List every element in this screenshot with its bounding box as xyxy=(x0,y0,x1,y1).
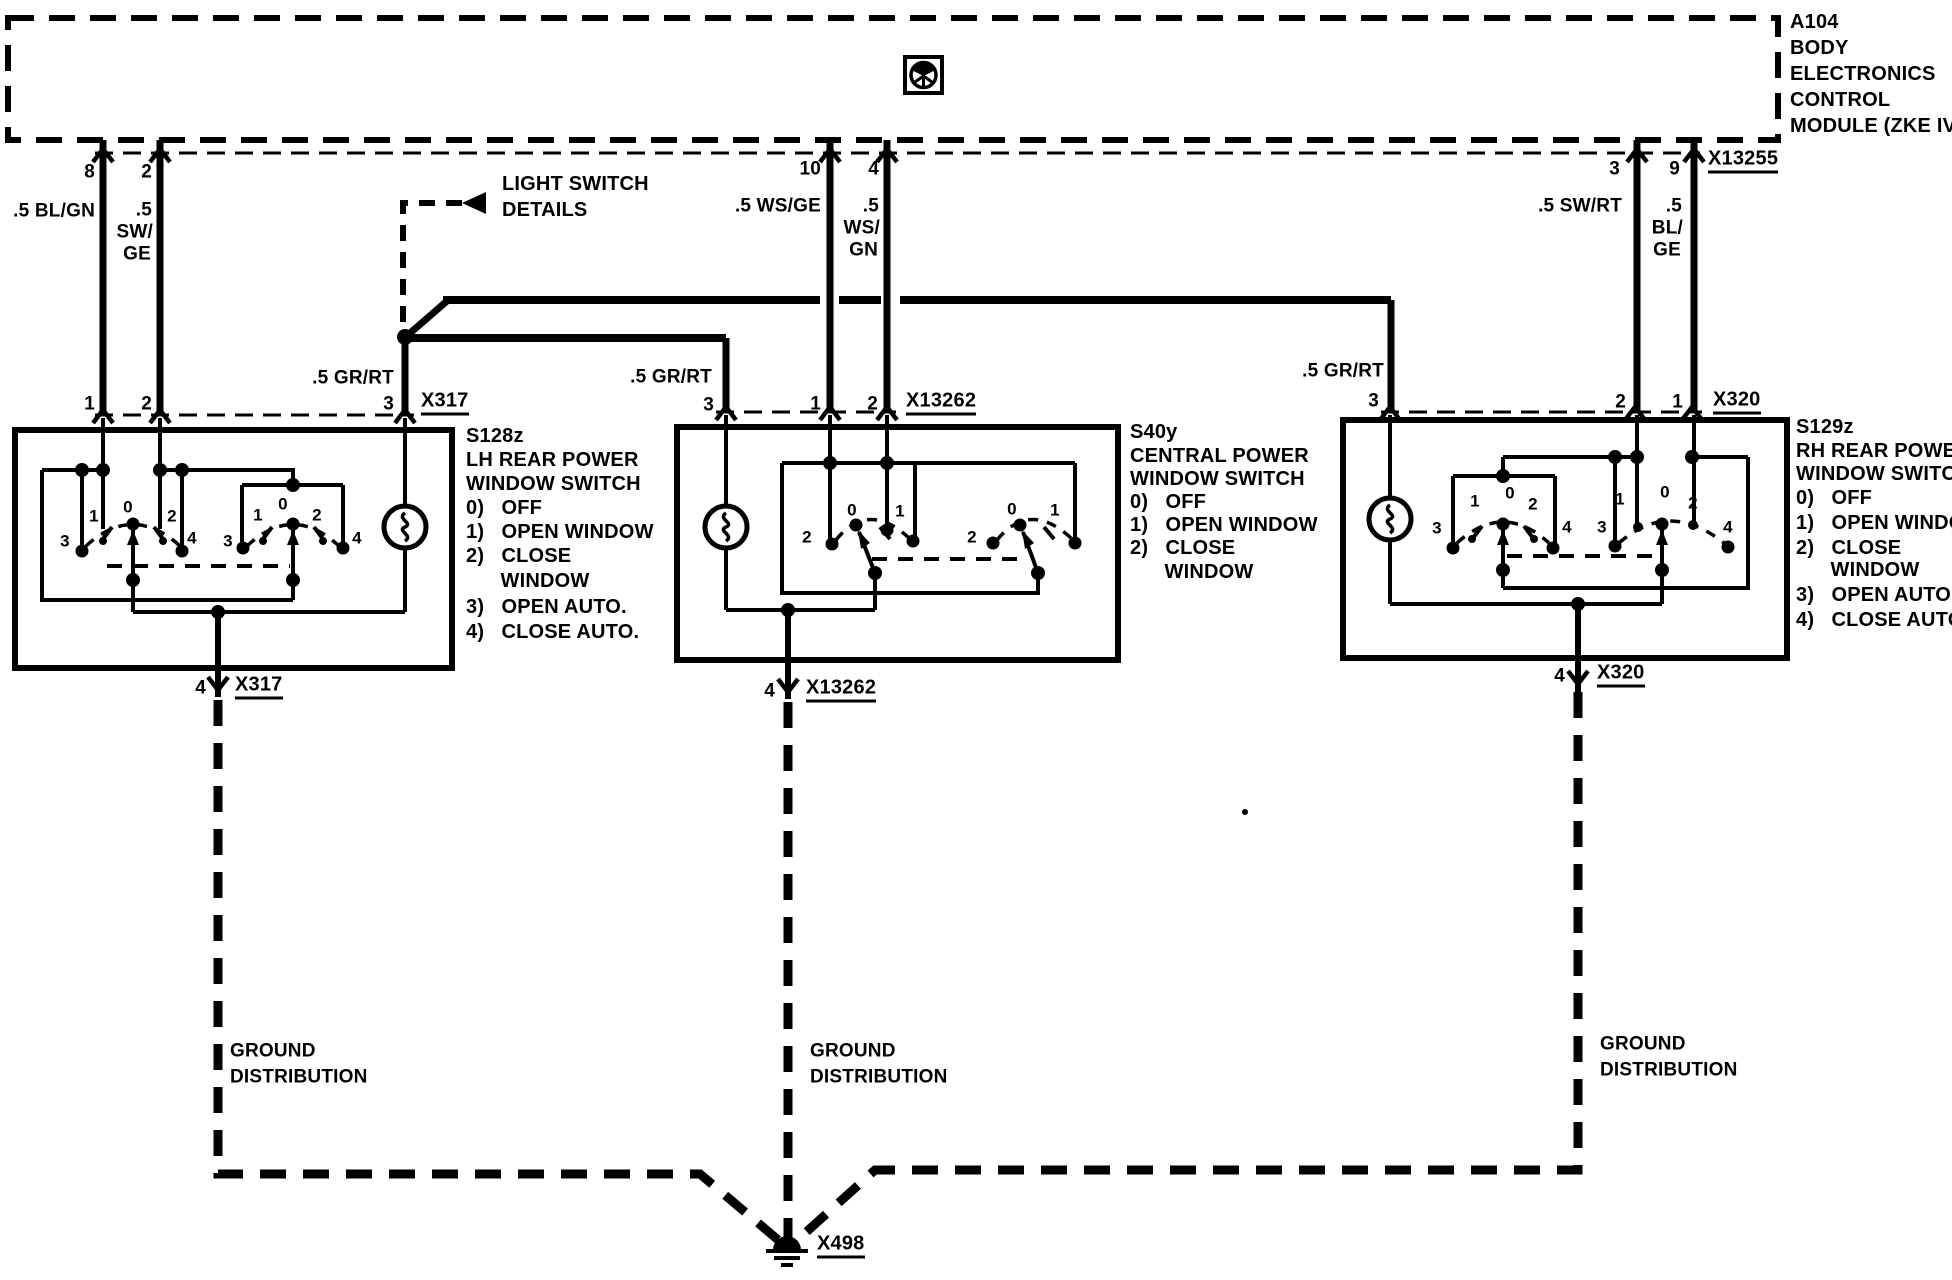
a104-pin-10: 10 xyxy=(799,160,821,179)
s128z-pos-2: 2) CLOSE xyxy=(466,546,571,566)
light-switch-ref-2: DETAILS xyxy=(502,200,587,220)
s128z-pin-2: 2 xyxy=(141,395,152,414)
s129z-pin-3: 3 xyxy=(1368,392,1379,411)
switch-f-pos-2: 2 xyxy=(1688,495,1698,512)
s128z-pos-1: 1) OPEN WINDOW xyxy=(466,522,654,542)
wire-bl-ge-2: BL/ xyxy=(1652,219,1683,238)
switch-a-pos-2: 2 xyxy=(167,508,177,525)
connector-x317-bottom: X317 xyxy=(235,675,283,700)
s129z-pos-4: 4) CLOSE AUTO. xyxy=(1796,610,1952,630)
s128z-line-2: LH REAR POWER xyxy=(466,450,639,470)
a104-pin-4: 4 xyxy=(868,160,879,179)
s129z-pin-2: 2 xyxy=(1615,393,1626,412)
s128z-pos-0: 0) OFF xyxy=(466,498,542,518)
a104-pin-2: 2 xyxy=(141,163,152,182)
switch-c-pos-2: 2 xyxy=(802,529,812,546)
s129z-pin-4: 4 xyxy=(1554,667,1565,686)
s129z-pin-1: 1 xyxy=(1672,393,1683,412)
wire-bl-ge-3: GE xyxy=(1653,241,1681,260)
ground-left-1: GROUND xyxy=(230,1042,316,1061)
a104-line-module: MODULE (ZKE IV) xyxy=(1790,116,1952,136)
s128z-title: S128z xyxy=(466,426,524,446)
s40y-pin-4: 4 xyxy=(764,682,775,701)
wire-ws-ge: .5 WS/GE xyxy=(735,197,821,216)
a104-id: A104 xyxy=(1790,12,1839,32)
s129z-line-2: RH REAR POWER xyxy=(1796,441,1952,461)
wire-ws-gn-2: WS/ xyxy=(844,219,881,238)
connector-x498: X498 xyxy=(817,1234,865,1259)
s40y-pin-1: 1 xyxy=(810,395,821,414)
s40y-pos-2b: WINDOW xyxy=(1130,562,1254,582)
a104-line-control: CONTROL xyxy=(1790,90,1890,110)
switch-d-pos-1: 1 xyxy=(1050,502,1060,519)
ground-center-1: GROUND xyxy=(810,1042,896,1061)
switch-e-pos-2: 2 xyxy=(1528,496,1538,513)
s40y-pin-2: 2 xyxy=(867,395,878,414)
a104-line-body: BODY xyxy=(1790,38,1849,58)
a104-line-electronics: ELECTRONICS xyxy=(1790,64,1936,84)
switch-a-pos-3: 3 xyxy=(60,533,70,550)
s40y-line-2: CENTRAL POWER xyxy=(1130,446,1309,466)
s40y-pos-2: 2) CLOSE xyxy=(1130,538,1235,558)
switch-b-pos-4: 4 xyxy=(352,530,362,547)
s128z-pos-4: 4) CLOSE AUTO. xyxy=(466,622,639,642)
s40y-pin-3: 3 xyxy=(703,396,714,415)
wire-gr-rt-center: .5 GR/RT xyxy=(630,368,712,387)
ground-left-2: DISTRIBUTION xyxy=(230,1068,368,1087)
wire-sw-rt: .5 SW/RT xyxy=(1538,197,1622,216)
connector-x13255: X13255 xyxy=(1708,149,1778,174)
connector-x13262-bottom: X13262 xyxy=(806,678,876,703)
s40y-line-3: WINDOW SWITCH xyxy=(1130,469,1305,489)
switch-a-pos-0: 0 xyxy=(123,499,133,516)
connector-x320-top: X320 xyxy=(1713,390,1761,415)
connector-x317-top: X317 xyxy=(421,391,469,416)
switch-e-pos-4: 4 xyxy=(1562,519,1572,536)
switch-b-pos-2: 2 xyxy=(312,507,322,524)
switch-c-pos-1: 1 xyxy=(895,503,905,520)
s129z-pos-1: 1) OPEN WINDOW xyxy=(1796,513,1952,533)
switch-d-pos-0: 0 xyxy=(1007,501,1017,518)
s128z-pin-3: 3 xyxy=(383,395,394,414)
wire-sw-ge-2: SW/ xyxy=(117,223,154,242)
wire-bl-ge-1: .5 xyxy=(1666,197,1682,216)
switch-e-pos-1: 1 xyxy=(1470,493,1480,510)
wire-sw-ge-1: .5 xyxy=(136,201,152,220)
s129z-pos-2b: WINDOW xyxy=(1796,560,1920,580)
switch-c-pos-0: 0 xyxy=(847,502,857,519)
switch-b-pos-3: 3 xyxy=(223,533,233,550)
s128z-pin-4: 4 xyxy=(195,679,206,698)
ground-right-2: DISTRIBUTION xyxy=(1600,1061,1738,1080)
wiring-diagram-page: A104BODYELECTRONICSCONTROLMODULE (ZKE IV… xyxy=(0,0,1952,1280)
s40y-pos-0: 0) OFF xyxy=(1130,492,1206,512)
switch-d-pos-2: 2 xyxy=(967,529,977,546)
s129z-pos-0: 0) OFF xyxy=(1796,488,1872,508)
wire-bl-gn: .5 BL/GN xyxy=(13,202,95,221)
wire-sw-ge-3: GE xyxy=(123,245,151,264)
ground-center-2: DISTRIBUTION xyxy=(810,1068,948,1087)
wire-gr-rt-right: .5 GR/RT xyxy=(1302,362,1384,381)
light-switch-ref-1: LIGHT SWITCH xyxy=(502,174,649,194)
s129z-pos-3: 3) OPEN AUTO. xyxy=(1796,585,1952,605)
wire-ws-gn-1: .5 xyxy=(863,197,879,216)
wire-gr-rt-left: .5 GR/RT xyxy=(312,369,394,388)
switch-e-pos-3: 3 xyxy=(1432,520,1442,537)
a104-pin-8: 8 xyxy=(84,163,95,182)
s128z-pos-3: 3) OPEN AUTO. xyxy=(466,597,627,617)
wire-ws-gn-3: GN xyxy=(849,241,878,260)
connector-x320-bottom: X320 xyxy=(1597,663,1645,688)
switch-b-pos-1: 1 xyxy=(253,507,263,524)
switch-f-pos-1: 1 xyxy=(1615,491,1625,508)
s128z-pin-1: 1 xyxy=(84,395,95,414)
switch-f-pos-4: 4 xyxy=(1723,519,1733,536)
s128z-pos-2b: WINDOW xyxy=(466,571,590,591)
s40y-title: S40y xyxy=(1130,422,1178,442)
diagram-labels-layer: A104BODYELECTRONICSCONTROLMODULE (ZKE IV… xyxy=(0,0,1952,1280)
switch-e-pos-0: 0 xyxy=(1505,485,1515,502)
a104-pin-3: 3 xyxy=(1609,160,1620,179)
switch-a-pos-1: 1 xyxy=(89,508,99,525)
a104-pin-9: 9 xyxy=(1669,160,1680,179)
s129z-pos-2: 2) CLOSE xyxy=(1796,538,1901,558)
s129z-title: S129z xyxy=(1796,417,1854,437)
ground-right-1: GROUND xyxy=(1600,1035,1686,1054)
switch-f-pos-3: 3 xyxy=(1597,519,1607,536)
connector-x13262-top: X13262 xyxy=(906,391,976,416)
switch-b-pos-0: 0 xyxy=(278,496,288,513)
switch-f-pos-0: 0 xyxy=(1660,484,1670,501)
s129z-line-3: WINDOW SWITCH xyxy=(1796,464,1952,484)
switch-a-pos-4: 4 xyxy=(187,530,197,547)
s40y-pos-1: 1) OPEN WINDOW xyxy=(1130,515,1318,535)
s128z-line-3: WINDOW SWITCH xyxy=(466,474,641,494)
